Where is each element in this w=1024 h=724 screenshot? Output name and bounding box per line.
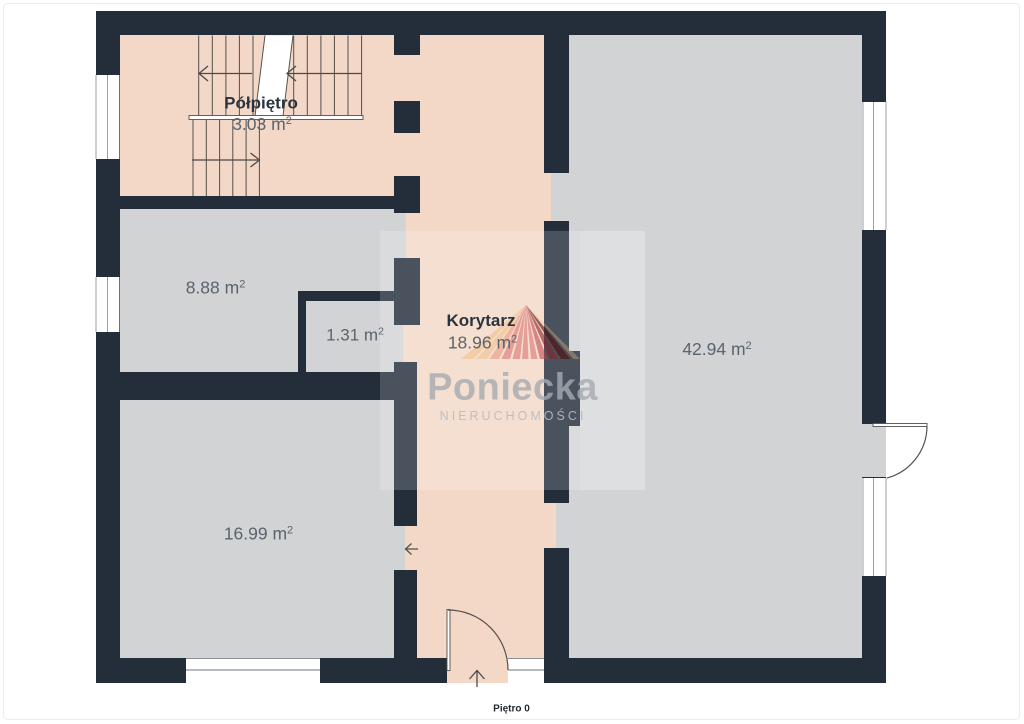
svg-text:42.94 m2: 42.94 m2: [682, 339, 751, 359]
svg-text:18.96 m2: 18.96 m2: [448, 333, 517, 353]
svg-text:Poniecka: Poniecka: [427, 367, 598, 409]
svg-text:3.03 m2: 3.03 m2: [232, 114, 292, 134]
svg-text:1.31 m2: 1.31 m2: [326, 326, 384, 345]
svg-text:Piętro 0: Piętro 0: [493, 704, 530, 715]
svg-text:16.99 m2: 16.99 m2: [224, 524, 293, 544]
svg-text:Półpiętro: Półpiętro: [224, 94, 298, 113]
svg-text:NIERUCHOMOŚCI: NIERUCHOMOŚCI: [440, 408, 587, 423]
svg-text:Korytarz: Korytarz: [447, 311, 516, 330]
svg-text:8.88 m2: 8.88 m2: [186, 278, 246, 298]
